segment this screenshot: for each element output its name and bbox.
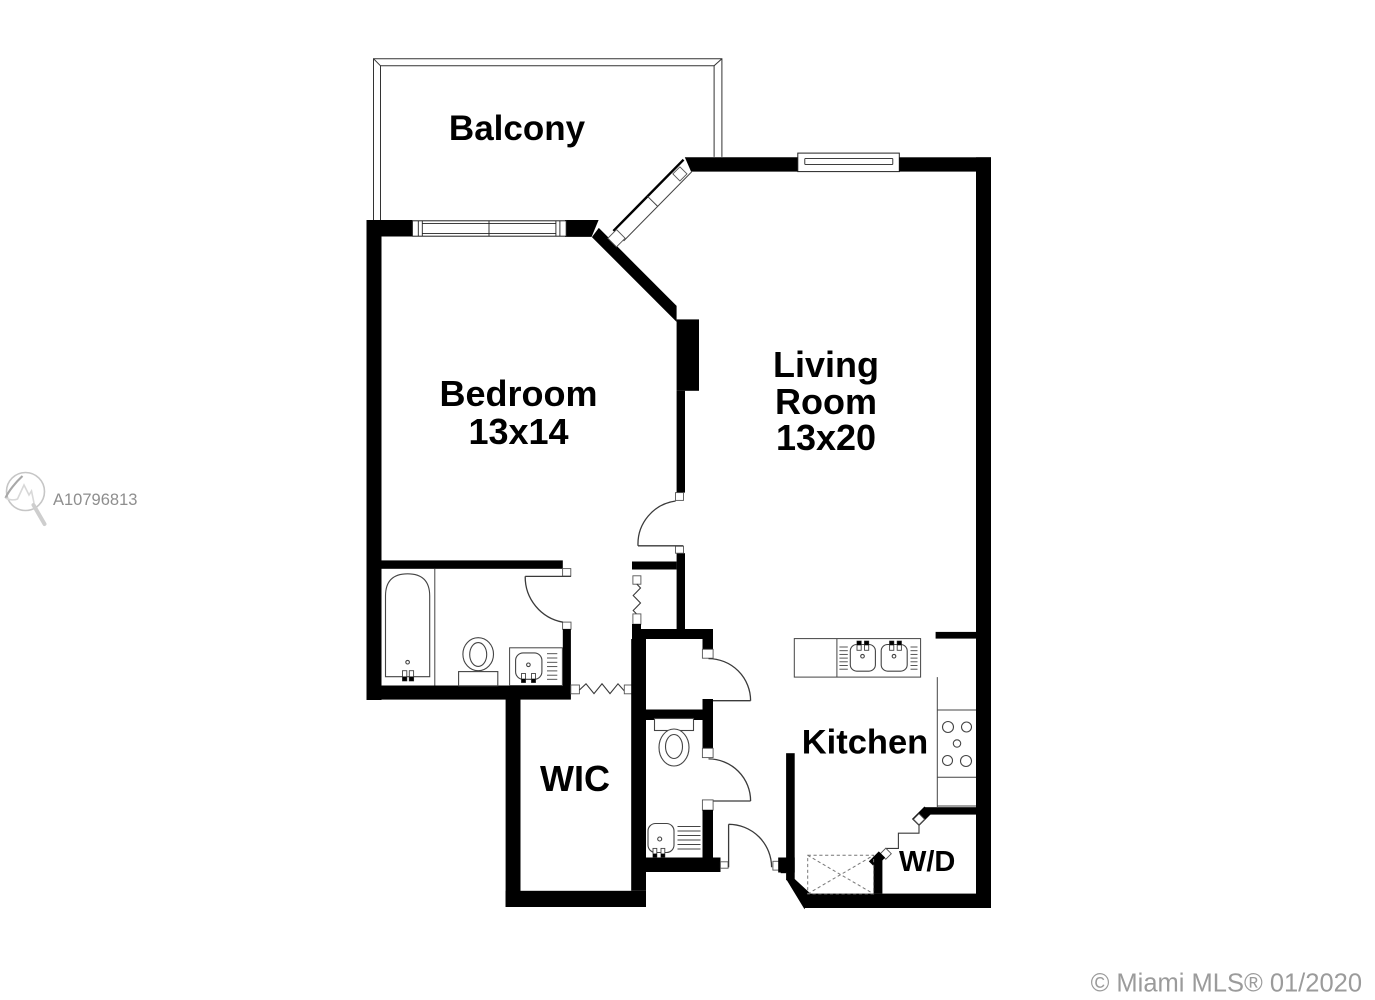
svg-text:Balcony: Balcony xyxy=(449,109,586,148)
svg-text:Living: Living xyxy=(773,344,879,385)
svg-text:A10796813: A10796813 xyxy=(53,491,137,509)
svg-text:Kitchen: Kitchen xyxy=(802,724,929,762)
svg-text:13x20: 13x20 xyxy=(776,417,876,458)
svg-text:WIC: WIC xyxy=(540,758,610,799)
svg-text:13x14: 13x14 xyxy=(468,411,568,452)
svg-text:Room: Room xyxy=(775,381,877,422)
svg-text:W/D: W/D xyxy=(899,846,955,878)
svg-text:© Miami MLS® 01/2020: © Miami MLS® 01/2020 xyxy=(1091,970,1362,998)
svg-text:Bedroom: Bedroom xyxy=(439,373,597,414)
